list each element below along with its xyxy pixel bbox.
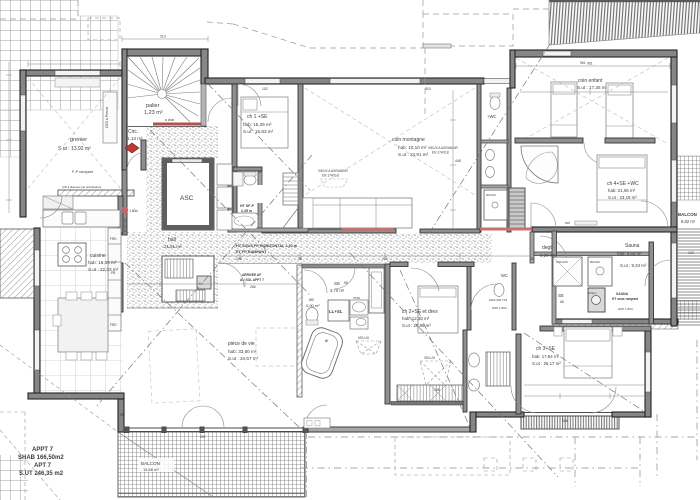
svg-text:8,82 m²: 8,82 m² — [681, 219, 696, 224]
svg-text:21,91 m²: 21,91 m² — [164, 244, 182, 249]
svg-text:VIEUX A AGRANDIR: VIEUX A AGRANDIR — [318, 169, 348, 173]
svg-text:a char: a char — [165, 118, 175, 122]
svg-text:HSP 1.80m: HSP 1.80m — [618, 307, 634, 311]
svg-text:961: 961 — [580, 61, 586, 65]
svg-text:Circ.: Circ. — [128, 129, 138, 135]
svg-text:S.ut : 22,33 m²: S.ut : 22,33 m² — [88, 267, 119, 272]
svg-text:HSP 1.80m: HSP 1.80m — [492, 306, 508, 310]
svg-text:F-P rampant: F-P rampant — [72, 170, 94, 174]
svg-text:+WC: +WC — [487, 114, 496, 119]
svg-text:198: 198 — [434, 388, 440, 392]
svg-text:coin montagne: coin montagne — [392, 137, 425, 143]
svg-text:1,13 m²: 1,13 m² — [127, 136, 143, 141]
svg-text:HT SOUS FP HORIZONTAL 2,30 m: HT SOUS FP HORIZONTAL 2,30 m — [236, 244, 298, 248]
svg-text:hab: 21,06 m²: hab: 21,06 m² — [608, 188, 636, 193]
svg-text:S.ut : 34,67 m²: S.ut : 34,67 m² — [228, 356, 259, 361]
svg-text:S.UT 246,35 m2: S.UT 246,35 m2 — [19, 471, 64, 477]
svg-text:FRD: FRD — [110, 237, 117, 241]
svg-text:62: 62 — [530, 257, 534, 261]
svg-text:66: 66 — [560, 300, 564, 304]
svg-text:ET FP RAMPANT: ET FP RAMPANT — [236, 250, 267, 254]
svg-text:100x100: 100x100 — [556, 260, 568, 264]
svg-text:cuisine: cuisine — [90, 253, 106, 259]
svg-text:ARRIVEE AF: ARRIVEE AF — [242, 273, 261, 277]
svg-text:BALCON: BALCON — [678, 212, 697, 217]
svg-text:hab: 17,84 m²: hab: 17,84 m² — [532, 354, 560, 359]
svg-text:FRD: FRD — [110, 323, 117, 327]
svg-text:hab: 15,29 m²: hab: 15,29 m² — [243, 122, 272, 127]
svg-text:2,35 m: 2,35 m — [241, 209, 252, 213]
svg-text:S.ut : 26,17 m²: S.ut : 26,17 m² — [532, 361, 561, 366]
svg-text:961: 961 — [587, 62, 593, 66]
svg-text:210: 210 — [160, 35, 166, 39]
svg-text:216: 216 — [382, 257, 388, 261]
svg-text:240: 240 — [236, 257, 242, 261]
svg-text:SE: SE — [334, 281, 340, 286]
svg-text:VIEUX A AGRANDIR: VIEUX A AGRANDIR — [428, 146, 458, 150]
svg-text:GES.300 T34: GES.300 T34 — [489, 298, 507, 302]
svg-text:ch 1 +SE: ch 1 +SE — [247, 114, 268, 120]
svg-text:SE: SE — [558, 293, 564, 298]
svg-text:hab: 33,60 m²: hab: 33,60 m² — [228, 349, 257, 354]
svg-text:hab: 18,05 m²: hab: 18,05 m² — [88, 260, 117, 265]
svg-text:LL+SL: LL+SL — [329, 309, 343, 314]
svg-text:102: 102 — [262, 87, 268, 91]
svg-text:EN 174/118: EN 174/118 — [432, 151, 449, 155]
svg-text:S.ut : 26,95 m²: S.ut : 26,95 m² — [402, 323, 431, 328]
svg-text:hall: hall — [168, 237, 176, 243]
svg-text:266: 266 — [250, 285, 256, 289]
svg-text:CES à Prévoir: CES à Prévoir — [105, 106, 109, 128]
svg-text:388: 388 — [562, 419, 568, 423]
svg-text:coin enfant: coin enfant — [578, 78, 603, 84]
svg-text:S.ut : 9,34 m²: S.ut : 9,34 m² — [620, 263, 647, 268]
svg-text:S.ut : 13,92 m²: S.ut : 13,92 m² — [58, 146, 91, 152]
svg-text:S.ut : 17,35 m²: S.ut : 17,35 m² — [577, 85, 608, 90]
svg-text:WC: WC — [501, 273, 508, 278]
svg-text:HT sous rampant: HT sous rampant — [612, 297, 639, 301]
svg-text:grenier: grenier — [70, 137, 87, 143]
svg-text:98: 98 — [298, 257, 302, 261]
svg-text:VELUX: VELUX — [424, 356, 436, 360]
svg-text:90: 90 — [120, 413, 124, 417]
svg-text:100μm: 100μm — [588, 291, 597, 295]
svg-text:rad: rad — [565, 221, 570, 225]
svg-text:wc: wc — [309, 297, 314, 302]
svg-text:ch 2+SE et dres: ch 2+SE et dres — [402, 309, 438, 315]
svg-text:APPT 7: APPT 7 — [32, 447, 54, 453]
svg-text:BALCON: BALCON — [141, 461, 160, 466]
svg-text:70/50: 70/50 — [353, 296, 360, 300]
svg-text:SAUNA: SAUNA — [616, 292, 629, 296]
svg-text:VELUX: VELUX — [358, 336, 370, 340]
svg-text:HT SF-P: HT SF-P — [240, 204, 255, 208]
svg-text:0,90 m²: 0,90 m² — [306, 303, 320, 308]
svg-text:15,66 m²: 15,66 m² — [143, 467, 159, 472]
svg-text:310: 310 — [425, 87, 431, 91]
svg-text:ASC: ASC — [180, 195, 194, 202]
svg-text:Sauna: Sauna — [625, 243, 640, 249]
svg-text:(VR à disposer par anticipatio: (VR à disposer par anticipation) — [62, 185, 101, 189]
svg-text:pièce de vie: pièce de vie — [228, 341, 255, 347]
svg-text:degt: degt — [542, 245, 552, 251]
svg-text:ch 4+SE +WC: ch 4+SE +WC — [607, 181, 639, 187]
svg-text:80x100: 80x100 — [590, 260, 600, 264]
svg-text:337: 337 — [200, 435, 206, 439]
svg-text:90x100: 90x100 — [486, 193, 496, 197]
svg-text:ELEC/TEL: ELEC/TEL — [124, 217, 128, 232]
svg-text:1,23 m²: 1,23 m² — [144, 110, 163, 116]
svg-text:palier: palier — [146, 103, 160, 109]
svg-text:hab: 8,55 m²: hab: 8,55 m² — [617, 251, 642, 256]
svg-text:448: 448 — [455, 159, 461, 163]
svg-text:APT 7: APT 7 — [34, 463, 52, 469]
svg-text:S.ut : 15,83 m²: S.ut : 15,83 m² — [243, 129, 274, 134]
svg-text:120: 120 — [688, 251, 694, 255]
svg-text:hab: 12,30 m²: hab: 12,30 m² — [402, 316, 430, 321]
svg-text:55: 55 — [344, 281, 348, 285]
svg-text:S.ut : 23,19 m²: S.ut : 23,19 m² — [608, 195, 637, 200]
